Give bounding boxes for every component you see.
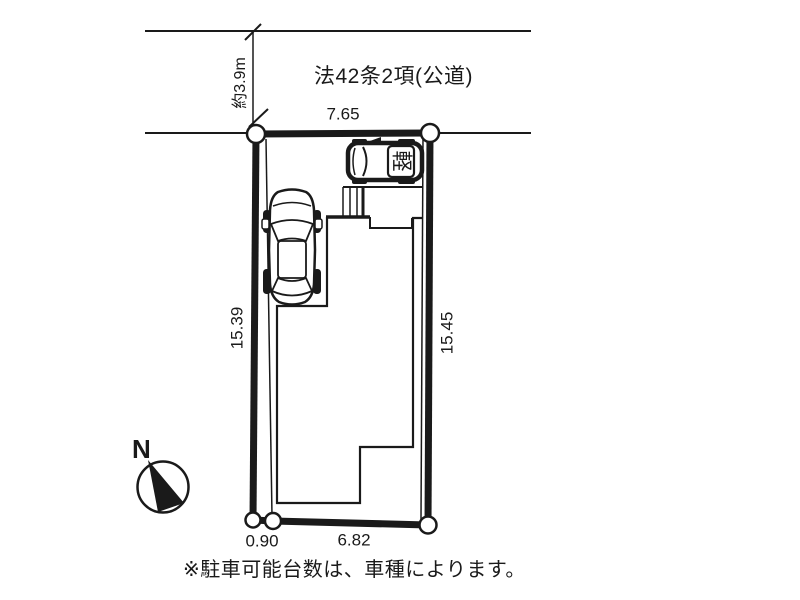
plot-plan-drawing [0, 0, 800, 600]
corner-marker-se [420, 517, 437, 534]
boundary-east [428, 133, 430, 525]
building-porch-step [370, 217, 412, 228]
plot-plan-diagram: 法42条2項(公道) 約3.9m 7.65 15.39 15.45 0.90 6… [0, 0, 800, 600]
corner-marker-sw-inner [265, 513, 281, 529]
boundary-corner-markers [246, 124, 440, 534]
road-type-label: 法42条2項(公道) [314, 66, 473, 87]
north-compass-icon [138, 460, 189, 513]
entrance-stairs [343, 187, 363, 217]
boundary-north [256, 133, 430, 134]
compass-north-letter: N [132, 436, 151, 462]
dimension-west: 15.39 [229, 307, 246, 350]
inner-line-west [266, 139, 272, 516]
corner-marker-sw-outer [246, 513, 261, 528]
dimension-south-offset: 0.90 [245, 533, 278, 550]
parking-note: ※駐車可能台数は、車種によります。 [183, 560, 526, 580]
corner-marker-nw [247, 125, 265, 143]
kei-car-badge: 軽 [391, 151, 412, 172]
dimension-north: 7.65 [326, 106, 359, 123]
dimension-east: 15.45 [439, 312, 456, 355]
inner-line-east [421, 139, 423, 519]
corner-marker-ne [421, 124, 439, 142]
dimension-south: 6.82 [337, 532, 370, 549]
road-width-label: 約3.9m [233, 57, 249, 109]
boundary-south [273, 521, 428, 525]
car-mirror-right [315, 219, 322, 229]
sedan-car-icon [262, 190, 322, 305]
car-mirror-left [262, 219, 269, 229]
boundary-west [253, 134, 256, 520]
